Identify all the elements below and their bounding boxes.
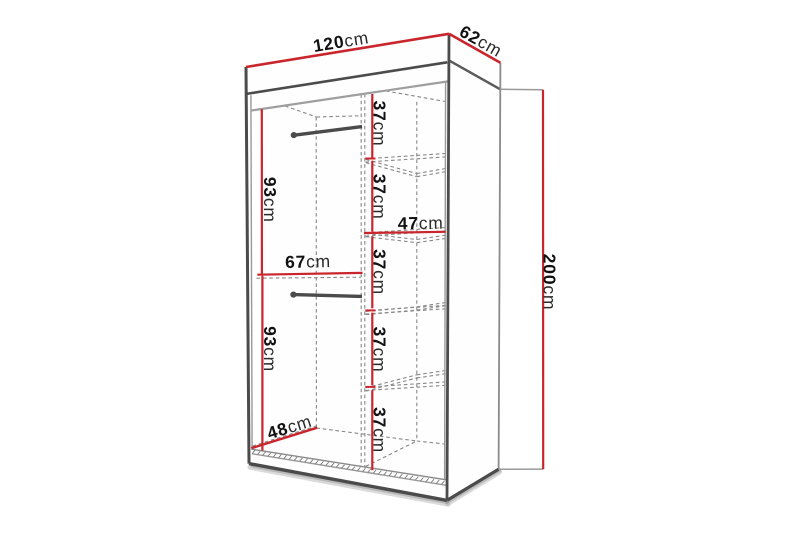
svg-text:37cm: 37cm [370, 101, 390, 147]
svg-text:67cm: 67cm [285, 251, 331, 272]
svg-text:93cm: 93cm [260, 326, 280, 372]
svg-text:47cm: 47cm [398, 213, 444, 234]
svg-text:37cm: 37cm [370, 174, 390, 220]
svg-text:93cm: 93cm [260, 177, 280, 223]
svg-text:200cm: 200cm [540, 254, 560, 311]
svg-text:37cm: 37cm [370, 327, 390, 373]
svg-text:37cm: 37cm [370, 407, 390, 453]
svg-text:37cm: 37cm [370, 249, 390, 295]
